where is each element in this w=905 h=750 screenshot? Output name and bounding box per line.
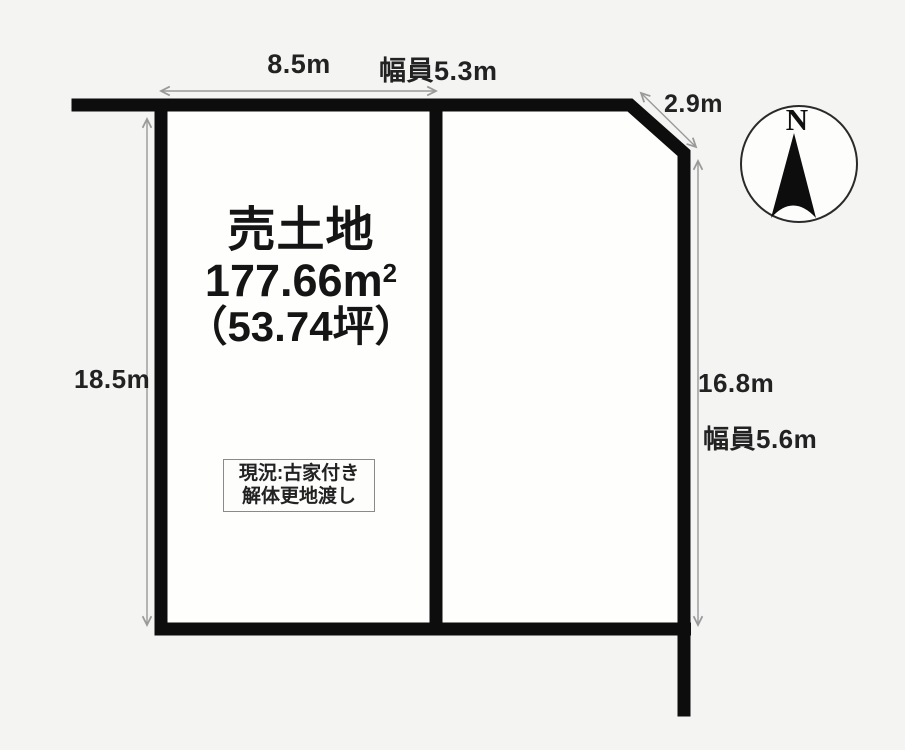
right-road-width-label: 幅員5.6m (703, 419, 817, 456)
parcel-headline: 売土地 177.66m2 （53.74坪） (185, 206, 416, 349)
parcel-interior (155, 105, 684, 629)
listing-title: 売土地 (185, 206, 416, 257)
left-depth-label: 18.5m (74, 364, 150, 395)
area-square-meters-value: 177.66m (205, 255, 383, 306)
status-note-box: 現況:古家付き 解体更地渡し (223, 459, 375, 512)
top-road-width-label: 幅員5.3m (379, 49, 498, 88)
area-square-meters-exponent: 2 (383, 258, 397, 288)
top-frontage-label: 8.5m (267, 49, 331, 80)
chamfer-dimension-label: 2.9m (664, 90, 723, 119)
compass-north-label: N (786, 102, 808, 138)
land-plot-diagram: 8.5m 幅員5.3m 2.9m 18.5m 16.8m 幅員5.6m 売土地 … (0, 0, 905, 750)
area-square-meters: 177.66m2 (185, 257, 416, 305)
status-line-2: 解体更地渡し (224, 485, 374, 508)
area-tsubo: （53.74坪） (185, 305, 416, 350)
right-depth-label: 16.8m (698, 368, 774, 399)
status-line-1: 現況:古家付き (224, 462, 374, 485)
